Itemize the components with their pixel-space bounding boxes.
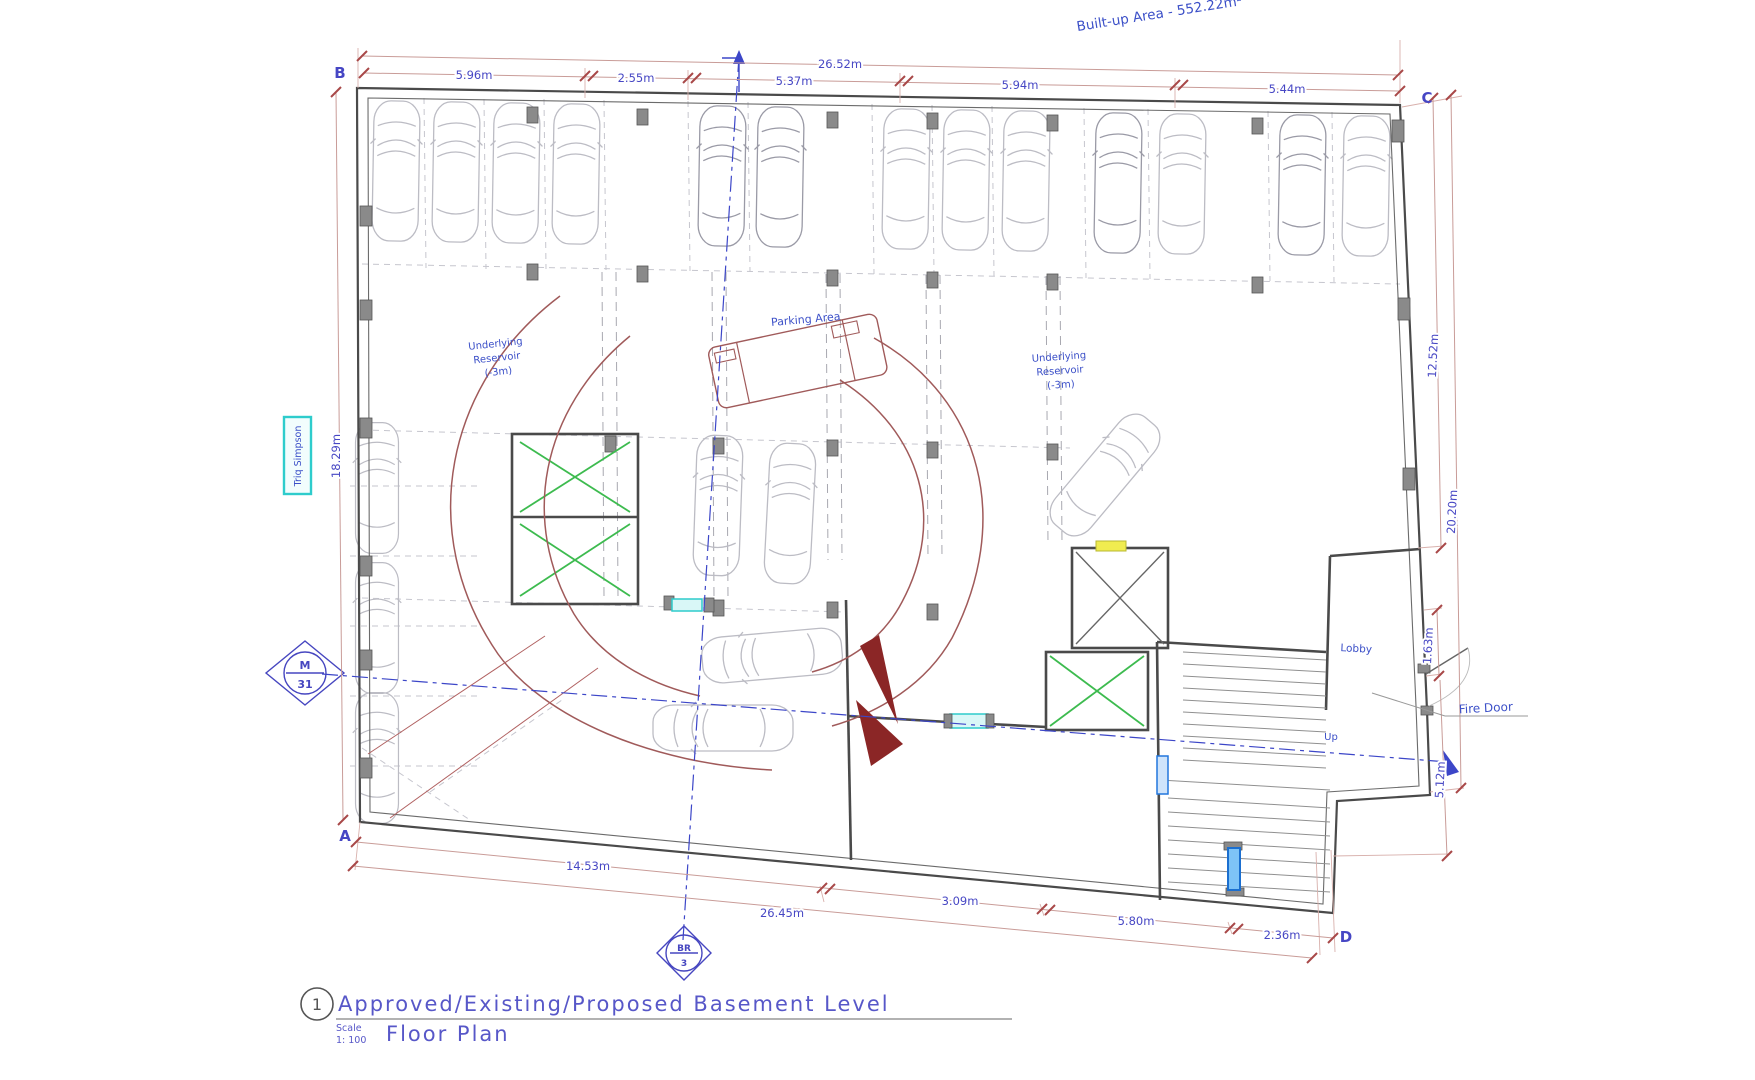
dimensions-top: 26.52m 5.96m 2.55m 5.37m 5.94m 5.44m [357,40,1405,108]
up-label: Up [1324,732,1338,743]
blue-door [1157,756,1168,794]
dim-top-total: 26.52m [818,57,862,71]
dim-top-3: 5.37m [776,74,813,88]
dim-bottom-2: 5.80m [1118,914,1155,928]
cyan-door [672,599,702,611]
reservoir-line: Underlying [1031,350,1086,365]
street-name-box: Triq Simpson [284,417,311,494]
dim-top-5: 5.44m [1269,82,1306,96]
parking-area-label: Parking Area [770,310,840,329]
blue-door [1228,848,1240,890]
grid-marker-a: A [339,827,351,845]
dim-bottom-total: 26.45m [760,906,804,920]
grid-marker-b: B [334,64,345,82]
dim-right-mid: 20.20m [1444,489,1460,534]
plan-labels: Built-up Area - 552.22m² Triq Simpson Pa… [284,0,1528,743]
ramp-arrow-wedge [856,700,903,766]
lobby-label: Lobby [1340,642,1372,656]
reservoir-label-right: Underlying Reservoir (-3m) [1031,350,1088,393]
reservoir-line: (-3m) [484,366,513,380]
dim-bottom-1: 3.09m [942,894,979,908]
drawing-subtitle: Floor Plan [386,1022,510,1046]
shaft-yellow-marker [1096,541,1126,551]
reservoir-line: Reservoir [473,350,522,366]
dim-right-lobby: 1.63m [1420,627,1436,664]
scale-value: 1: 100 [336,1035,366,1046]
grid-marker-d: D [1340,928,1352,946]
dim-bottom-inner: 14.53m [566,859,610,873]
reservoir-label-left: Underlying Reservoir (-3m) [468,336,526,380]
grid-markers: B C A D [334,64,1432,946]
dim-top-1: 5.96m [456,68,493,82]
dimensions-right: 12.52m 20.20m 1.63m 5.12m [1333,90,1466,861]
section-marker-letter: M [300,659,311,672]
section-marker-number: 3 [681,959,687,969]
scale-label: Scale [336,1023,362,1034]
dim-right-lower: 5.12m [1432,761,1448,798]
section-marker-letter: BR [677,944,691,954]
dim-top-2: 2.55m [618,71,655,85]
dimensions-bottom: 14.53m 3.09m 5.80m 2.36m 26.45m [348,822,1338,963]
dim-right-upper: 12.52m [1425,333,1441,378]
staircase [1160,652,1330,892]
dim-top-4: 5.94m [1002,78,1039,92]
dim-bottom-3: 2.36m [1264,928,1301,942]
section-marker-m31: M 31 [266,641,344,705]
drawing-title: Approved/Existing/Proposed Basement Leve… [338,992,890,1016]
fire-door-label: Fire Door [1372,693,1528,716]
sheet-number: 1 [312,995,322,1014]
section-lines: M 31 BR 3 [266,50,1459,980]
basement-floor-plan: M 31 BR 3 26.52m 5.96m 2.55m 5.37m 5.94m… [0,0,1755,1080]
title-block: 1 Approved/Existing/Proposed Basement Le… [301,988,1012,1046]
section-marker-br3: BR 3 [657,926,711,980]
street-name-label: Triq Simpson [293,426,304,488]
parking-stall-lines [350,98,1400,820]
fire-door-text: Fire Door [1458,700,1513,717]
dim-left-height: 18.29m [329,434,343,478]
grid-marker-c: C [1421,89,1432,107]
reservoir-line: Reservoir [1036,364,1085,378]
reservoir-line: (-3m) [1047,379,1075,392]
dimensions-left: 18.29m [329,87,348,825]
section-marker-number: 31 [297,678,312,691]
built-up-area-label: Built-up Area - 552.22m² [1076,0,1244,35]
